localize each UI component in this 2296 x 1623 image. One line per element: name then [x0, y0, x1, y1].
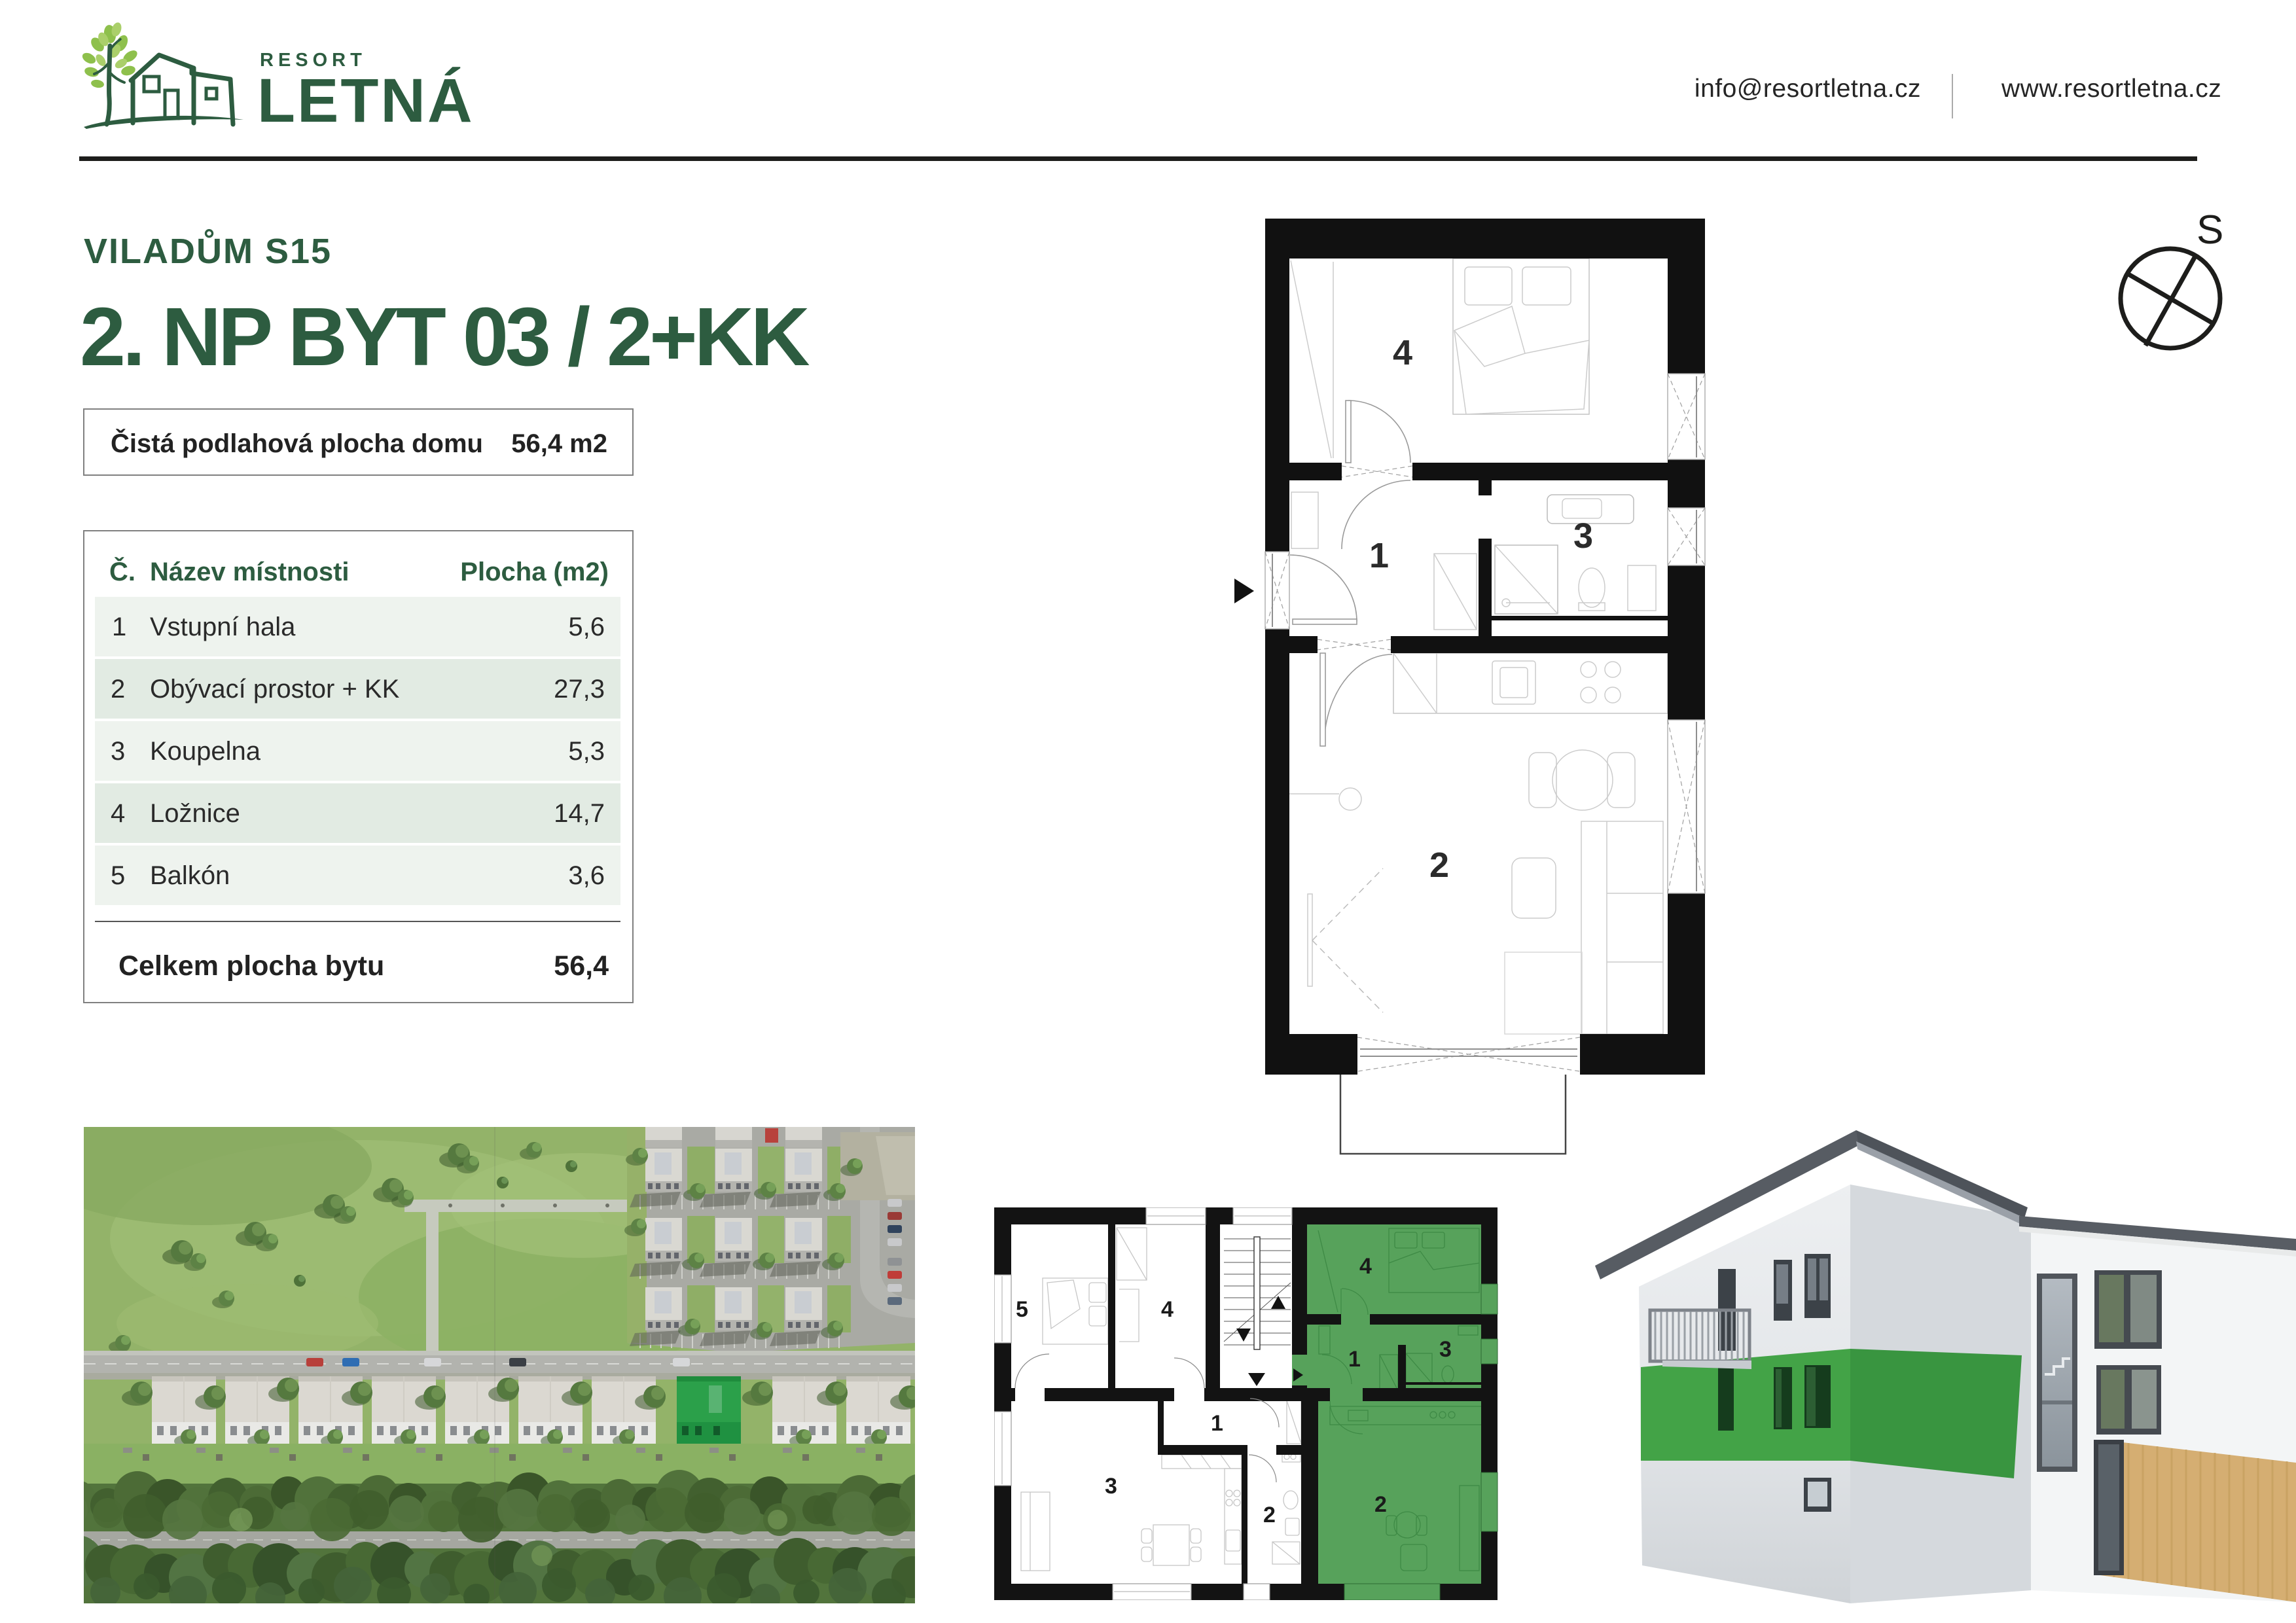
- svg-text:4: 4: [1393, 333, 1412, 372]
- svg-text:2: 2: [1374, 1492, 1387, 1517]
- svg-text:3: 3: [1573, 516, 1593, 556]
- svg-text:4: 4: [1359, 1254, 1372, 1279]
- svg-text:2: 2: [1263, 1503, 1276, 1527]
- svg-text:LETNÁ: LETNÁ: [257, 66, 475, 135]
- svg-text:1: 1: [1348, 1347, 1361, 1372]
- svg-text:S: S: [2197, 207, 2223, 253]
- svg-text:3: 3: [1105, 1474, 1117, 1499]
- svg-text:5: 5: [1016, 1297, 1028, 1322]
- svg-text:1: 1: [1369, 536, 1389, 575]
- svg-text:3: 3: [1439, 1337, 1452, 1362]
- svg-text:1: 1: [1211, 1411, 1223, 1436]
- svg-text:2: 2: [1429, 846, 1449, 885]
- svg-text:4: 4: [1161, 1297, 1174, 1322]
